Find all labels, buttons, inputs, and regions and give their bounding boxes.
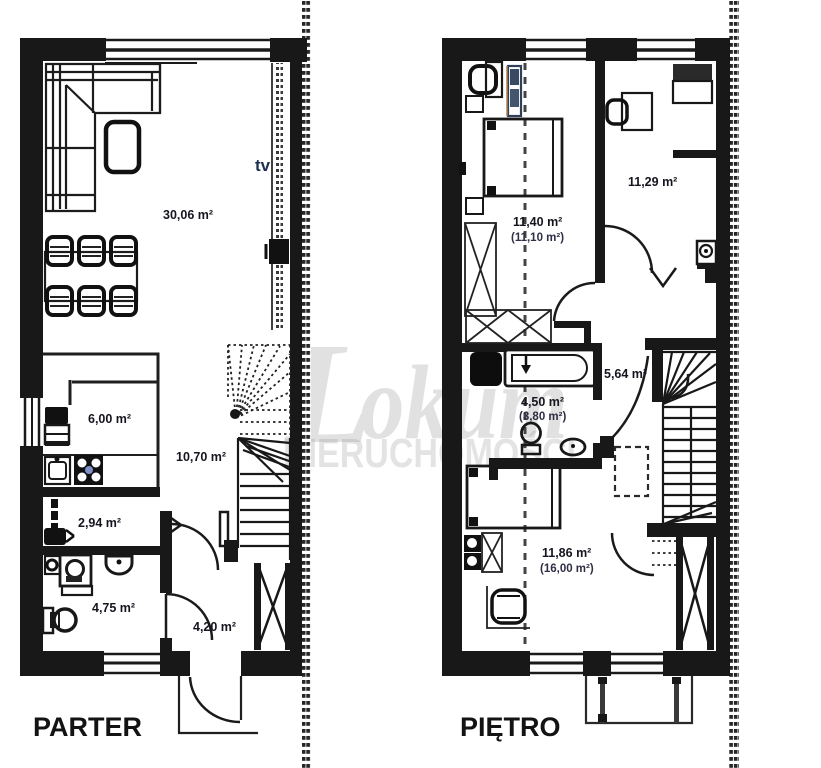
svg-text:4,75 m²: 4,75 m² [92,601,135,615]
svg-text:11,86 m²: 11,86 m² [542,546,591,560]
svg-text:11,40 m²: 11,40 m² [513,215,562,229]
svg-text:5,64 m²: 5,64 m² [604,367,647,381]
svg-text:30,06 m²: 30,06 m² [163,208,213,222]
svg-text:tv: tv [255,156,271,175]
svg-text:PARTER: PARTER [33,712,142,742]
svg-text:10,70 m²: 10,70 m² [176,450,226,464]
svg-text:PIĘTRO: PIĘTRO [460,712,561,742]
svg-text:4,20 m²: 4,20 m² [193,620,236,634]
svg-text:(3,80 m²): (3,80 m²) [519,411,566,423]
svg-text:11,29 m²: 11,29 m² [628,175,677,189]
svg-text:(16,00 m²): (16,00 m²) [540,563,594,575]
svg-text:6,00 m²: 6,00 m² [88,412,131,426]
svg-text:4,50 m²: 4,50 m² [521,395,564,409]
svg-text:(11,10 m²): (11,10 m²) [511,232,564,244]
svg-text:2,94 m²: 2,94 m² [78,516,121,530]
